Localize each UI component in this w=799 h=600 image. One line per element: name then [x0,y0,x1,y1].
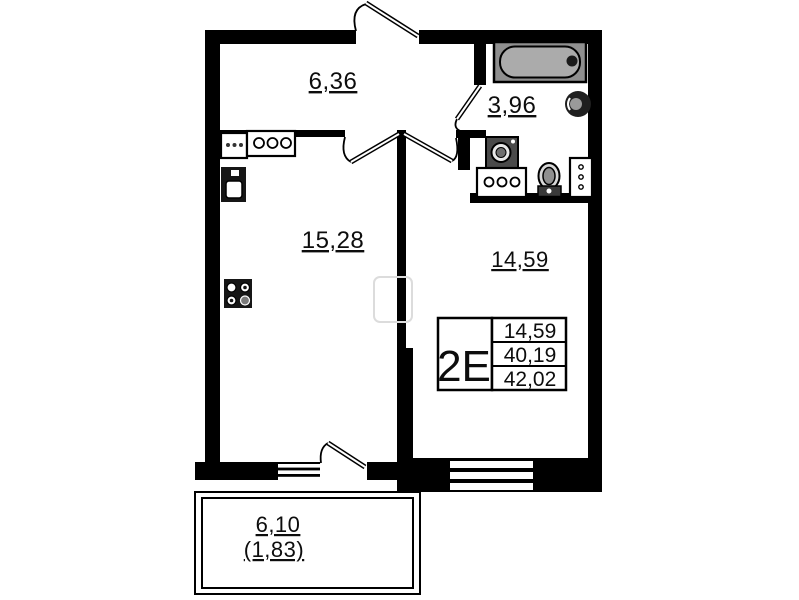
wall-bath-upper [474,44,486,85]
stove [224,279,252,308]
entrance-door [354,3,418,36]
wall-bottom-room-l [397,458,450,492]
wall-bottom-left [195,462,278,480]
kitchen-sink [221,167,246,202]
living-door [343,134,399,162]
table-row-living-area: 14,59 [504,320,557,343]
wall-center-thin [397,130,406,348]
bathroom-cabinet [570,158,592,197]
vanity-counter [477,168,526,197]
balcony-window [278,462,320,480]
kitchen-hob [247,131,295,156]
wall-bath-lower [458,138,470,170]
bathroom-area-label: 3,96 [488,92,537,119]
bathroom-fixtures [477,42,592,197]
unit-info-table: 2Е 14,59 40,19 42,02 [437,318,566,391]
wall-center-thick [397,348,413,462]
floor-plan-canvas: 2Е 14,59 40,19 42,02 6,36 3,96 15,28 14,… [0,0,799,600]
washing-machine [486,137,518,168]
room-door [404,134,457,161]
balcony-door [321,443,365,467]
wall-bottom-room-r [533,458,602,492]
bathroom-door [455,86,480,132]
wall-left [205,30,220,462]
wall-top-left [205,30,356,44]
toilet [538,163,561,197]
balcony-inner-line [202,498,413,588]
table-row-total-area: 40,19 [504,344,557,367]
bathtub [494,42,586,82]
room-area-label: 14,59 [491,247,549,272]
balcony-coeff-label: (1,83) [244,537,304,562]
balcony-area-label: 6,10 [256,512,301,537]
furniture-ghost [374,277,412,322]
balcony-outline [195,492,420,594]
living-area-label: 15,28 [302,227,365,254]
round-sink [565,91,591,117]
balcony-outer-line [195,492,420,594]
room-window [450,458,533,492]
unit-type-label: 2Е [437,342,491,391]
hallway-area-label: 6,36 [309,68,358,95]
kitchen-counter [221,133,247,158]
table-row-full-area: 42,02 [504,368,557,391]
